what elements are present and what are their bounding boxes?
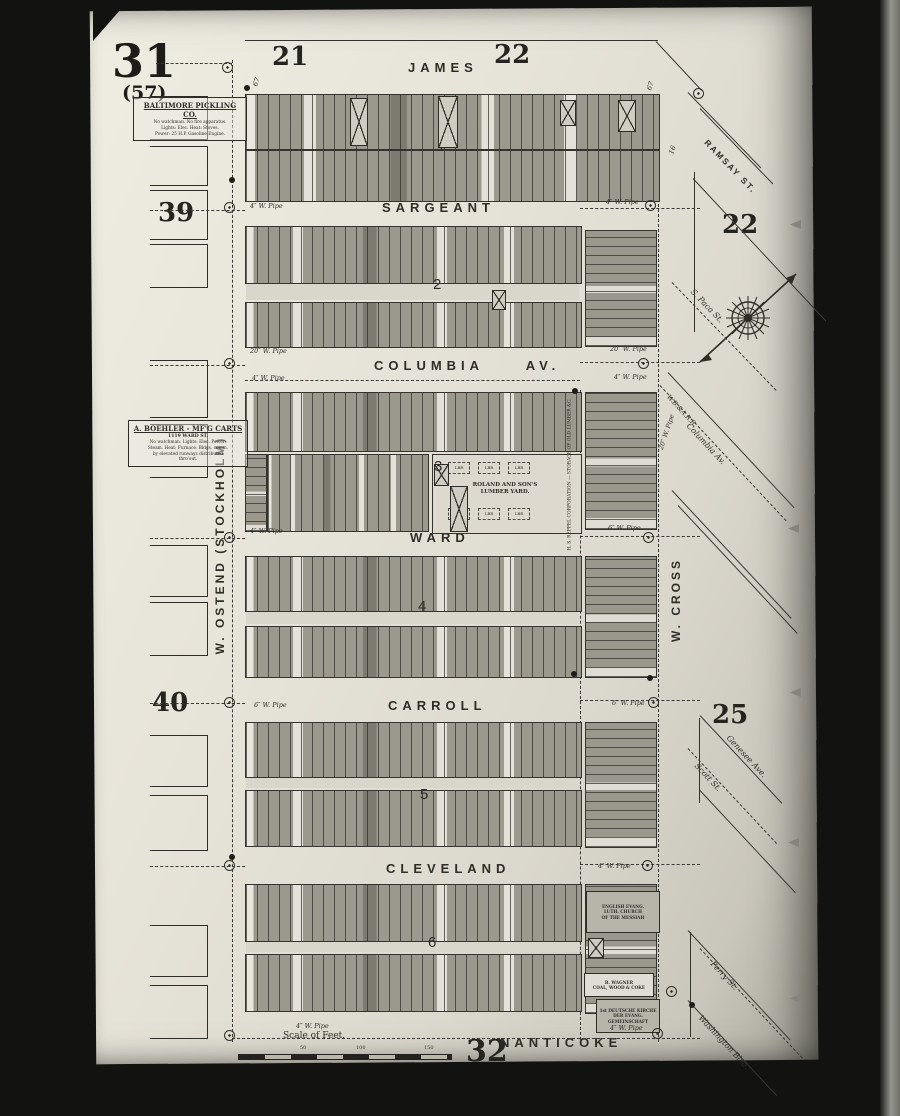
hydrant-dot xyxy=(571,671,577,677)
pipe-junction-symbol xyxy=(224,358,235,369)
compass-rose xyxy=(692,262,812,382)
margin-block-outline xyxy=(150,244,208,288)
street-label-james: JAMES xyxy=(408,60,478,75)
sheet-number: 31 xyxy=(112,38,176,84)
rowhouse-strip xyxy=(245,556,582,612)
pipe-label: 20″ W. Pipe xyxy=(250,347,287,355)
margin-block-outline xyxy=(150,985,208,1039)
scale-bar xyxy=(238,1054,452,1060)
pipe-junction-symbol xyxy=(638,358,649,369)
rear-yard-alley xyxy=(246,942,579,952)
street-label-sargeant: SARGEANT xyxy=(382,200,495,215)
pipe-junction-symbol xyxy=(643,532,654,543)
margin-block-outline xyxy=(150,360,208,418)
margin-block-outline xyxy=(150,602,208,656)
pipe-junction-symbol xyxy=(693,88,704,99)
rear-yard-alley xyxy=(246,284,579,300)
pipe-label: 6″ W. Pipe xyxy=(612,699,645,707)
pipe-junction-symbol xyxy=(224,1030,235,1041)
block-number-2: 2 xyxy=(433,276,441,293)
pipe-junction-symbol xyxy=(642,860,653,871)
rowhouse-strip xyxy=(245,790,582,847)
stable-x-building xyxy=(350,98,368,146)
lumber-yard-label: ROLAND AND SON'S LUMBER YARD. xyxy=(460,482,550,496)
scale-tick: 100 xyxy=(356,1045,366,1051)
pipe-junction-symbol xyxy=(666,986,677,997)
stable-x-building xyxy=(618,100,636,132)
lumber-pile: LBR xyxy=(478,462,500,474)
note-title: A. BOEHLER - MF'G CARTS xyxy=(133,424,243,433)
block-number-3: 3 xyxy=(434,458,442,475)
church-building: ENGLISH EVANG. LUTH. CHURCH OF THE MESSI… xyxy=(586,891,660,933)
hydrant-dot xyxy=(647,675,653,681)
pipe-label: 20″ W. Pipe xyxy=(610,345,647,353)
stable-x-building xyxy=(560,100,576,126)
stable-x-building xyxy=(438,96,458,148)
pipe-label: 6″ W. Pipe xyxy=(608,524,641,532)
stable-x-building xyxy=(492,290,506,310)
pipe-junction-symbol xyxy=(645,200,656,211)
hydrant-dot xyxy=(229,854,235,860)
pipe-label: 4″ W. Pipe xyxy=(250,202,283,210)
rowhouse-strip xyxy=(245,150,660,202)
scanned-sanborn-map-page: { "sheet": { "number": "31", "alt_number… xyxy=(0,0,900,1116)
rowhouse-strip xyxy=(245,626,582,678)
block-number-5: 5 xyxy=(420,786,428,803)
block-number-4: 4 xyxy=(418,598,426,615)
margin-block-outline xyxy=(150,190,208,240)
pipe-label: 4″ W. Pipe xyxy=(606,198,639,206)
note-title: BALTIMORE PICKLING CO. xyxy=(138,101,242,119)
pipe-label: 6″ W. Pipe xyxy=(254,701,287,709)
rowhouse-column xyxy=(585,392,657,530)
block-number-25: 25 xyxy=(712,700,748,730)
pipe-label: 4″ W. Pipe xyxy=(250,527,283,535)
pipe-junction-symbol xyxy=(222,62,233,73)
street-label-columbia-av: COLUMBIA AV. xyxy=(374,358,560,373)
scale-tick: 150 xyxy=(424,1045,434,1051)
lumber-pile: LBR xyxy=(478,508,500,520)
pipe-junction-symbol xyxy=(224,202,235,213)
scale-of-feet-label: Scale of Feet. xyxy=(283,1031,345,1041)
pipe-junction-symbol xyxy=(224,860,235,871)
street-label-w-cross: W. CROSS xyxy=(669,540,683,660)
margin-block-outline xyxy=(150,735,208,787)
rowhouse-strip xyxy=(245,884,582,942)
pipe-junction-symbol xyxy=(224,697,235,708)
stable-x-building xyxy=(588,938,604,958)
street-tie-line xyxy=(580,536,700,537)
rear-yard-alley xyxy=(246,778,579,788)
hydrant-dot xyxy=(572,388,578,394)
pipe-junction-symbol xyxy=(224,532,235,543)
rowhouse-column xyxy=(245,454,267,532)
hydrant-dot xyxy=(689,1002,695,1008)
pipe-junction-symbol xyxy=(648,697,659,708)
street-label-cleveland: CLEVELAND xyxy=(386,861,510,876)
pipe-label: 4″ W. Pipe xyxy=(598,862,631,870)
street-tie-line xyxy=(580,208,700,209)
pipe-label: 4″ W. Pipe xyxy=(296,1022,329,1030)
hydrant-dot xyxy=(229,177,235,183)
pipe-junction-symbol xyxy=(652,1028,663,1039)
rowhouse-column xyxy=(585,722,657,848)
scanner-edge-highlight xyxy=(880,0,900,1116)
rowhouse-column xyxy=(585,230,657,347)
rowhouse-strip xyxy=(245,954,582,1012)
margin-block-outline xyxy=(150,925,208,977)
street-label-carroll: CARROLL xyxy=(388,698,487,713)
rowhouse-strip xyxy=(245,302,582,348)
note-body: No watchman. No fire apparatus. Lights: … xyxy=(138,120,242,137)
lumber-pile: LBR xyxy=(508,462,530,474)
sheet-leader-line xyxy=(156,63,232,64)
block-number-21: 21 xyxy=(272,42,308,72)
rowhouse-column xyxy=(585,556,657,678)
note-boehler-carts: A. BOEHLER - MF'G CARTS 1119 WARD ST. No… xyxy=(128,420,248,467)
note-baltimore-pickling: BALTIMORE PICKLING CO. No watchman. No f… xyxy=(133,97,247,141)
margin-block-outline xyxy=(150,146,208,186)
rowhouse-strip xyxy=(245,392,582,452)
rear-yard-alley xyxy=(246,612,579,624)
warehouse-x-building xyxy=(450,486,468,532)
water-pipe-line xyxy=(245,380,580,381)
margin-block-outline xyxy=(150,795,208,851)
lumber-pile: LBR xyxy=(448,462,470,474)
lumber-storage-label: H. S. REPPEL CORPORATION — STORAGE OF OL… xyxy=(568,431,573,551)
rowhouse-strip xyxy=(245,722,582,778)
note-body: No watchman. Lights: Elec. Power: Steam.… xyxy=(133,440,243,463)
rowhouse-strip xyxy=(245,226,582,284)
margin-block-outline xyxy=(150,545,208,597)
note-address: 1119 WARD ST. xyxy=(133,434,243,439)
pipe-label: 4″ W. Pipe xyxy=(610,1024,643,1032)
block-number-6: 6 xyxy=(428,934,436,951)
map-neatline-top xyxy=(245,40,658,41)
coal-yard: B. WAGNER COAL, WOOD & COKE xyxy=(584,973,654,997)
hydrant-dot xyxy=(244,85,250,91)
scale-tick: 50 xyxy=(300,1045,306,1051)
street-edge-line xyxy=(690,932,691,1037)
pipe-label: 4″ W. Pipe xyxy=(614,373,647,381)
rowhouse-strip xyxy=(267,454,429,532)
block-number-22-top: 22 xyxy=(494,40,530,70)
lumber-pile: LBR xyxy=(508,508,530,520)
